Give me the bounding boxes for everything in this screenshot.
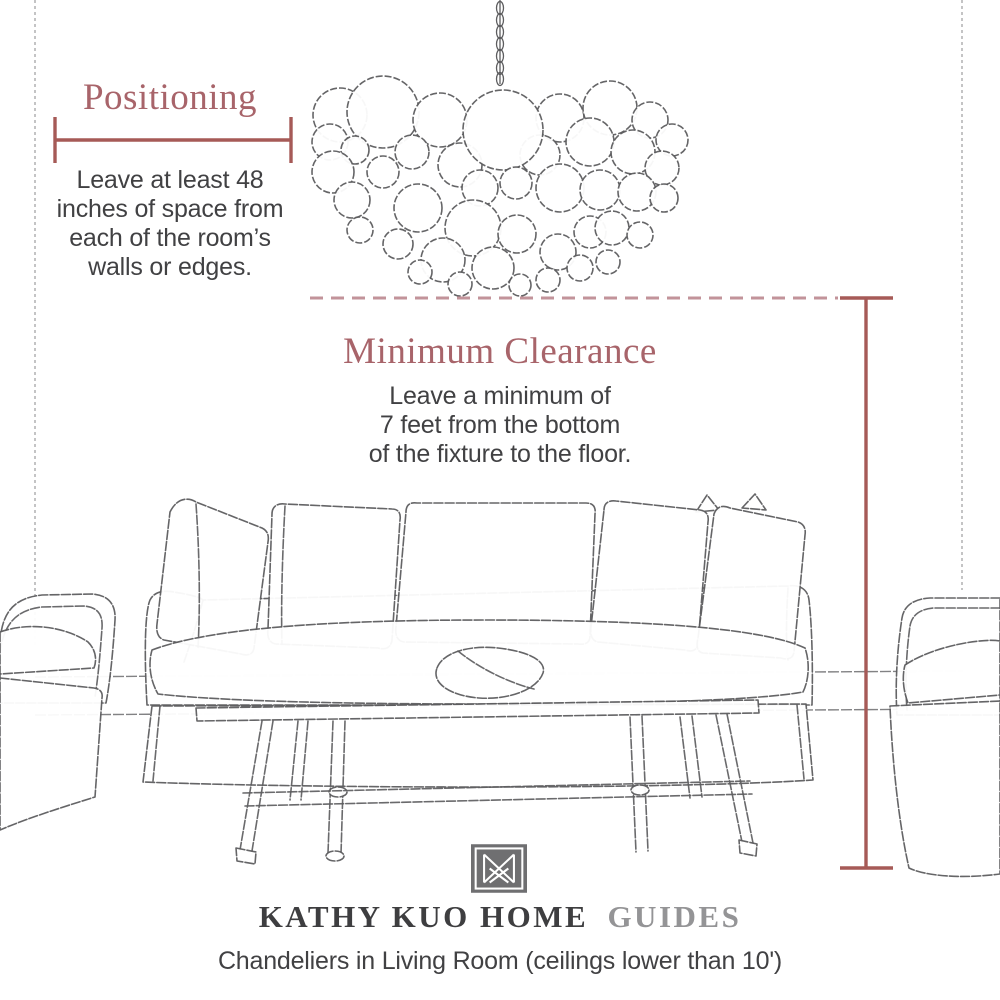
positioning-title: Positioning	[20, 76, 320, 119]
chandelier-bubbles	[312, 76, 688, 296]
vertical-measure-line	[840, 298, 893, 868]
guide-caption: Chandeliers in Living Room (ceilings low…	[0, 947, 1000, 976]
sofa-illustration	[143, 494, 813, 787]
brand-suffix: GUIDES	[607, 899, 741, 934]
clearance-body: Leave a minimum of 7 feet from the botto…	[290, 382, 710, 469]
chandelier-illustration	[312, 0, 688, 296]
horizontal-measure-line	[55, 117, 291, 163]
left-armchair-illustration	[0, 594, 115, 830]
brand-wordmark: KATHY KUO HOME GUIDES	[0, 899, 1000, 935]
infographic: Positioning Leave at least 48 inches of …	[0, 0, 1000, 1000]
kk-monogram-icon	[471, 844, 527, 893]
clearance-title: Minimum Clearance	[290, 330, 710, 373]
positioning-body: Leave at least 48 inches of space from e…	[20, 166, 320, 282]
right-armchair-illustration	[890, 598, 1000, 876]
brand-name: KATHY KUO HOME	[259, 899, 589, 934]
